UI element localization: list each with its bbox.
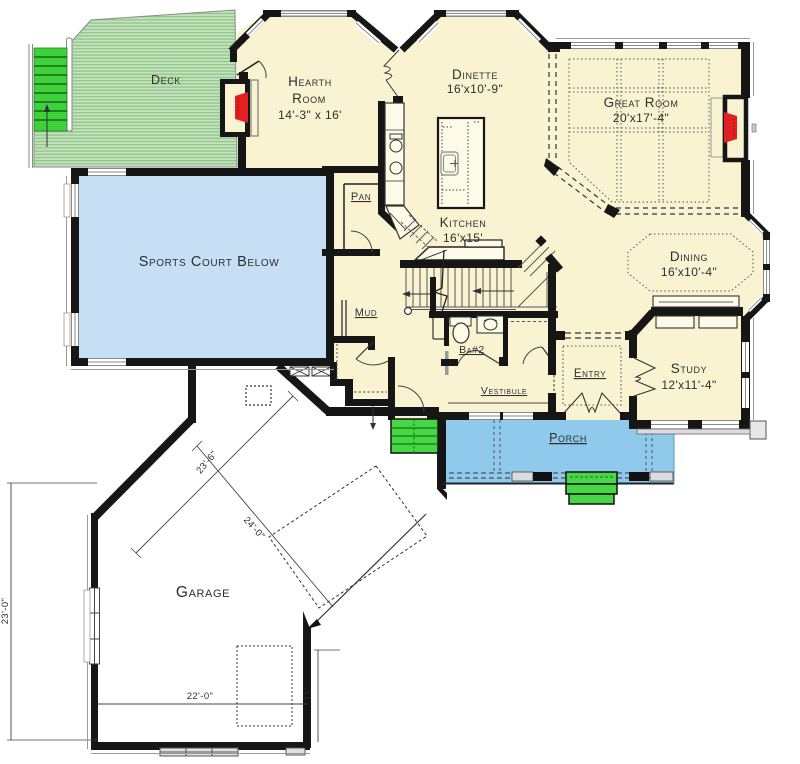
svg-text:20'x17'-4": 20'x17'-4" xyxy=(613,111,669,125)
svg-text:11': 11' xyxy=(303,688,314,701)
svg-text:Vestibule: Vestibule xyxy=(481,385,527,397)
svg-text:16'x10'-9": 16'x10'-9" xyxy=(447,82,503,96)
svg-text:Study: Study xyxy=(671,361,708,376)
svg-text:Porch: Porch xyxy=(549,431,587,445)
svg-text:12'x11'-4": 12'x11'-4" xyxy=(661,378,716,392)
svg-text:14'-3" x 16': 14'-3" x 16' xyxy=(278,108,342,122)
svg-text:Hearth: Hearth xyxy=(288,74,332,89)
svg-text:Dinette: Dinette xyxy=(452,67,498,82)
svg-text:Sports Court Below: Sports Court Below xyxy=(139,254,280,270)
svg-text:Garage: Garage xyxy=(176,584,230,601)
svg-text:Pan: Pan xyxy=(351,191,371,203)
svg-text:Dining: Dining xyxy=(670,249,708,264)
svg-text:Ba#2: Ba#2 xyxy=(459,344,485,356)
svg-text:Mud: Mud xyxy=(355,307,378,319)
svg-text:22'-0": 22'-0" xyxy=(187,691,214,702)
svg-text:Room: Room xyxy=(292,91,326,106)
svg-text:Entry: Entry xyxy=(574,368,606,380)
svg-text:Kitchen: Kitchen xyxy=(440,215,487,230)
svg-text:16'x15': 16'x15' xyxy=(443,231,483,245)
svg-text:Deck: Deck xyxy=(151,73,181,87)
svg-text:23'-0": 23'-0" xyxy=(0,598,11,625)
svg-text:Great Room: Great Room xyxy=(604,95,679,110)
svg-text:16'x10'-4": 16'x10'-4" xyxy=(661,265,717,279)
